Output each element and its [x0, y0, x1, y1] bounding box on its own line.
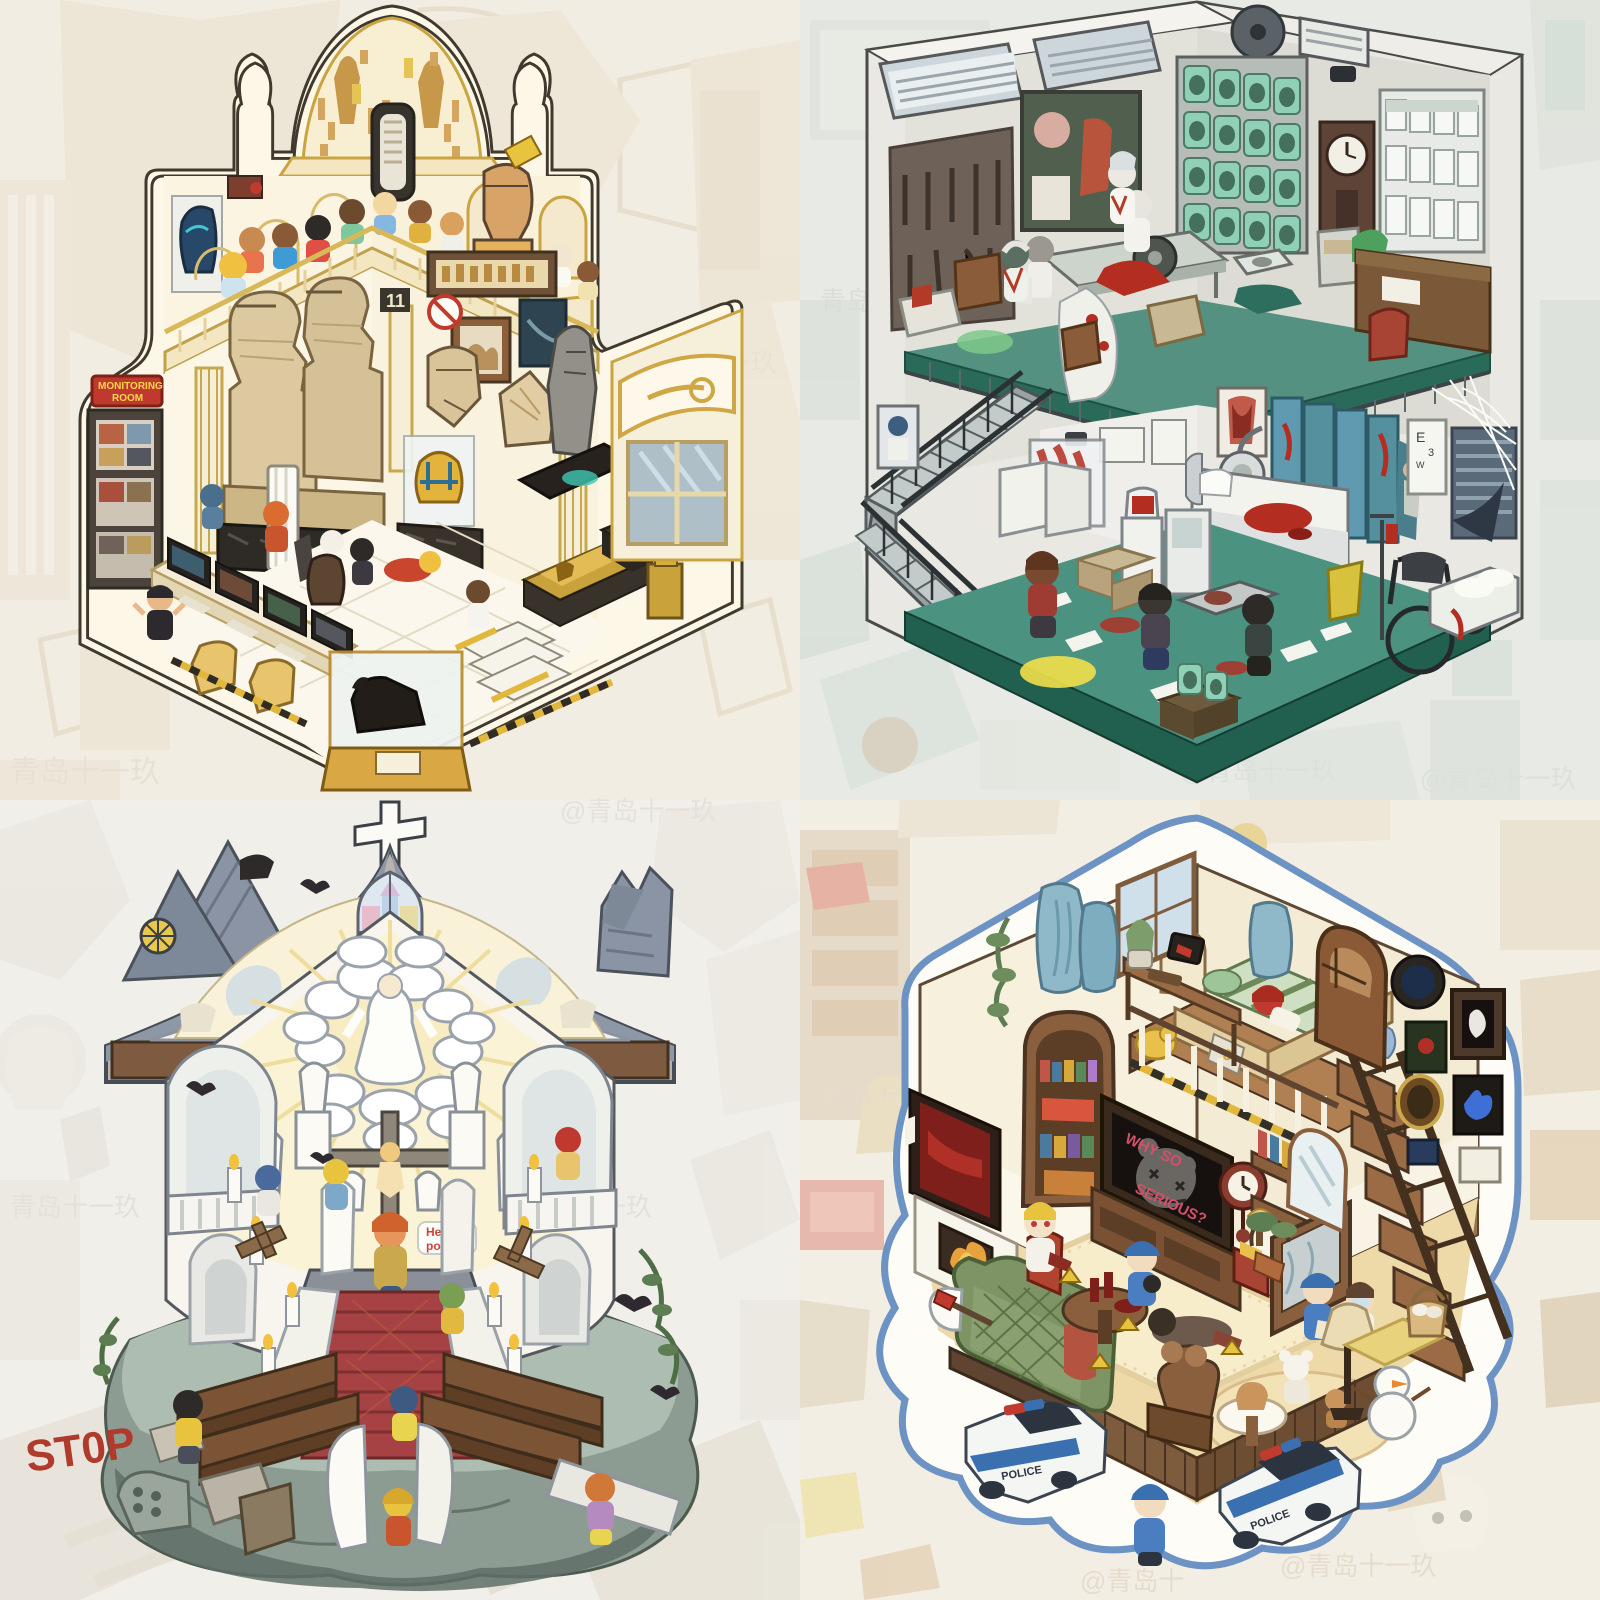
svg-text:11: 11: [386, 291, 405, 311]
svg-text:@青岛十一玖: @青岛十一玖: [1280, 1551, 1436, 1581]
svg-text:青岛十一玖: 青岛十一玖: [10, 1192, 140, 1222]
svg-text:@青岛十一玖: @青岛十一玖: [1420, 764, 1576, 794]
svg-text:MONITORING: MONITORING: [98, 381, 163, 392]
svg-text:@青岛十: @青岛十: [1080, 1566, 1184, 1596]
svg-text:E: E: [1416, 429, 1425, 445]
svg-text:青岛十一玖: 青岛十一玖: [10, 756, 160, 789]
svg-text:ROOM: ROOM: [112, 393, 143, 404]
svg-text:@青岛十一玖: @青岛十一玖: [560, 796, 716, 826]
svg-text:W: W: [1416, 460, 1425, 470]
svg-text:3: 3: [1428, 447, 1434, 459]
